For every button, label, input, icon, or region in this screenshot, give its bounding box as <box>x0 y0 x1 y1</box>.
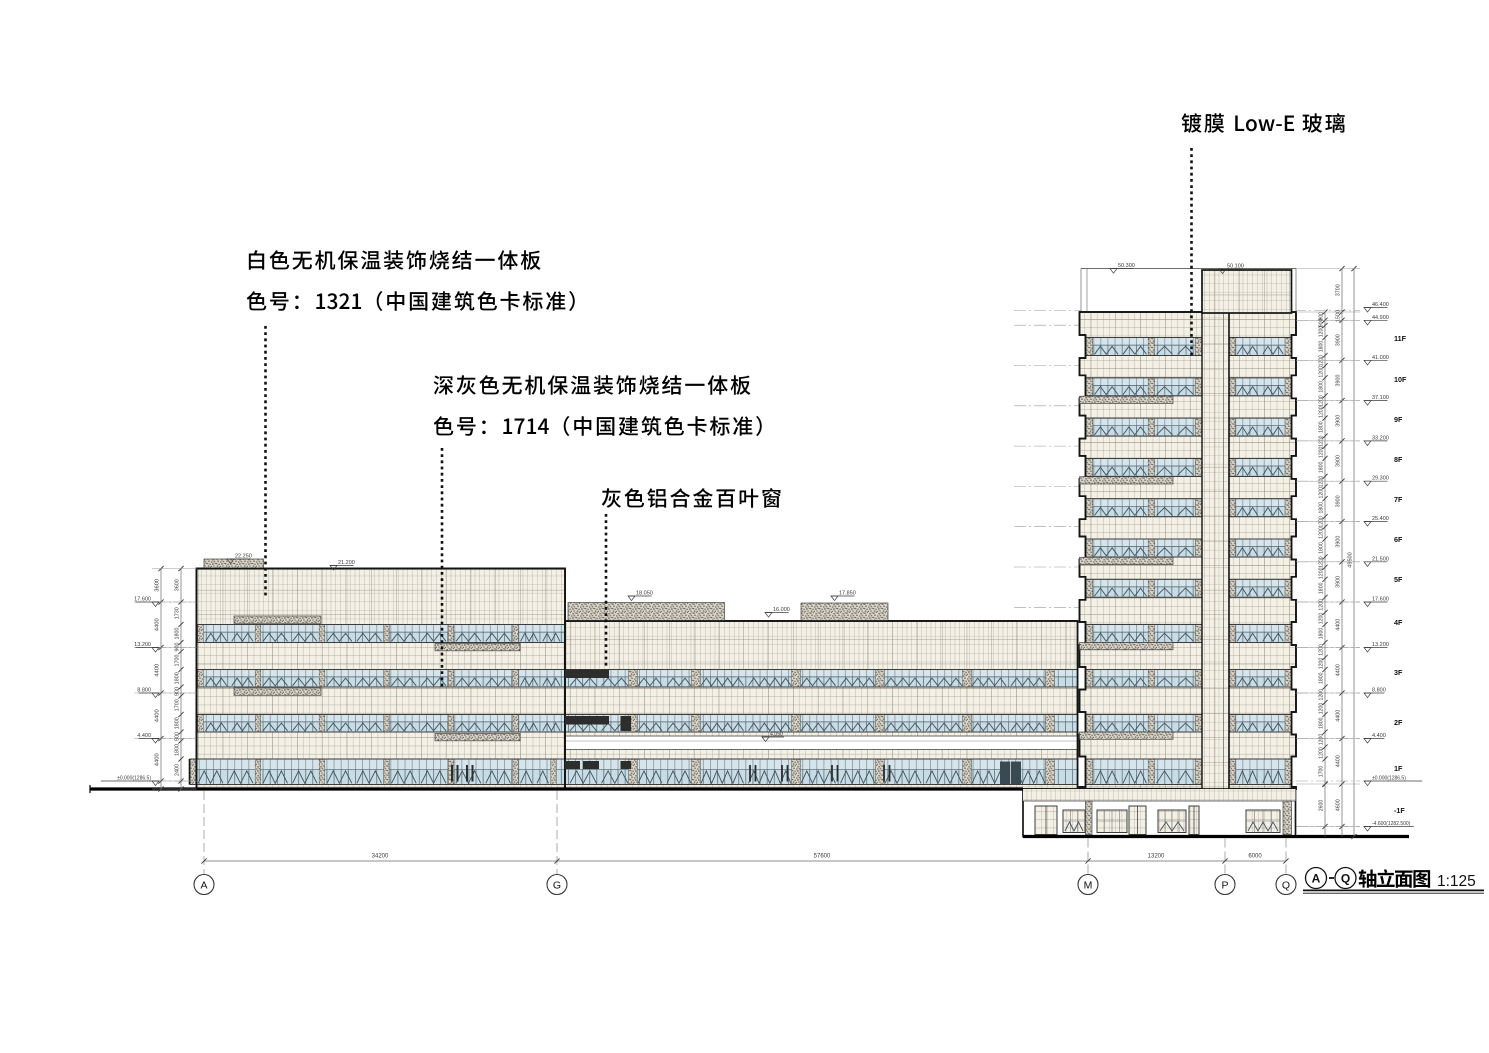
svg-text:-4.600(1282.500): -4.600(1282.500) <box>1372 821 1411 827</box>
svg-text:3600: 3600 <box>155 579 161 592</box>
svg-text:34200: 34200 <box>372 854 389 860</box>
svg-text:1200: 1200 <box>1319 599 1325 611</box>
svg-text:22.250: 22.250 <box>235 554 252 560</box>
svg-text:37.100: 37.100 <box>1372 395 1389 401</box>
svg-text:4400: 4400 <box>1335 664 1341 676</box>
svg-text:17.850: 17.850 <box>839 591 856 597</box>
svg-text:900: 900 <box>175 643 181 652</box>
svg-text:8.800: 8.800 <box>137 688 151 694</box>
svg-text:1700: 1700 <box>1319 766 1325 778</box>
svg-text:4F: 4F <box>1394 618 1403 627</box>
svg-text:13.200: 13.200 <box>134 642 151 648</box>
svg-text:1200: 1200 <box>1319 447 1325 459</box>
svg-text:±0.000(1286.5): ±0.000(1286.5) <box>117 776 151 782</box>
svg-text:1200: 1200 <box>1319 734 1325 746</box>
svg-text:1200: 1200 <box>1319 689 1325 701</box>
svg-text:4400: 4400 <box>155 709 161 722</box>
svg-text:25.400: 25.400 <box>1372 516 1389 522</box>
svg-text:1800: 1800 <box>1319 582 1325 594</box>
svg-text:±0.000(1286.5): ±0.000(1286.5) <box>1372 776 1406 782</box>
svg-text:A: A <box>1312 872 1321 886</box>
svg-text:44.900: 44.900 <box>1372 315 1389 321</box>
svg-text:G: G <box>553 879 561 891</box>
svg-text:16.000: 16.000 <box>773 607 790 613</box>
svg-text:1700: 1700 <box>175 655 181 667</box>
svg-text:4400: 4400 <box>1336 710 1342 722</box>
svg-text:1200: 1200 <box>1319 516 1325 528</box>
svg-text:11F: 11F <box>1394 334 1407 343</box>
svg-text:50.300: 50.300 <box>1118 263 1135 269</box>
svg-text:8.800: 8.800 <box>1372 688 1386 694</box>
svg-text:3900: 3900 <box>1336 495 1342 507</box>
svg-text:50.100: 50.100 <box>1227 264 1244 270</box>
svg-text:1800: 1800 <box>174 672 180 684</box>
svg-text:1800: 1800 <box>175 744 181 756</box>
svg-text:1800: 1800 <box>1318 672 1324 684</box>
svg-text:1800: 1800 <box>1319 628 1325 640</box>
svg-text:1800: 1800 <box>1319 462 1325 474</box>
svg-text:1200: 1200 <box>1318 355 1324 367</box>
svg-text:7F: 7F <box>1394 495 1403 504</box>
svg-text:Q: Q <box>1282 879 1290 891</box>
svg-text:46.400: 46.400 <box>1372 302 1389 308</box>
svg-text:900: 900 <box>175 687 181 696</box>
svg-text:5F: 5F <box>1394 575 1403 584</box>
svg-text:1200: 1200 <box>1319 658 1325 670</box>
svg-text:3900: 3900 <box>1335 536 1341 548</box>
svg-text:1200: 1200 <box>1319 613 1325 625</box>
svg-text:3900: 3900 <box>1335 455 1341 467</box>
svg-text:6000: 6000 <box>1248 854 1262 860</box>
svg-text:6F: 6F <box>1394 535 1403 544</box>
svg-text:Q: Q <box>1341 872 1350 886</box>
svg-text:1800: 1800 <box>174 717 180 729</box>
svg-text:17.600: 17.600 <box>134 597 151 603</box>
svg-text:29.300: 29.300 <box>1372 476 1389 482</box>
svg-text:2F: 2F <box>1394 718 1403 727</box>
svg-text:2600: 2600 <box>1319 800 1325 812</box>
svg-text:1700: 1700 <box>174 699 180 711</box>
svg-text:1:125: 1:125 <box>1437 873 1476 890</box>
svg-text:1800: 1800 <box>1319 341 1325 353</box>
svg-text:3600: 3600 <box>175 579 181 591</box>
svg-text:13200: 13200 <box>1148 854 1165 860</box>
svg-text:1200: 1200 <box>1319 567 1325 579</box>
svg-text:4400: 4400 <box>155 753 161 766</box>
svg-text:4400: 4400 <box>1336 619 1342 631</box>
svg-text:21.500: 21.500 <box>1372 556 1389 562</box>
svg-text:4.400: 4.400 <box>137 733 151 739</box>
svg-text:1200: 1200 <box>1319 644 1325 656</box>
svg-text:-1F: -1F <box>1394 806 1405 815</box>
svg-text:3900: 3900 <box>1336 374 1342 386</box>
svg-text:1800: 1800 <box>1319 381 1325 393</box>
svg-text:1800: 1800 <box>1319 502 1325 514</box>
svg-text:4400: 4400 <box>1335 755 1341 767</box>
svg-text:13.200: 13.200 <box>1372 642 1389 648</box>
svg-text:57600: 57600 <box>814 854 831 860</box>
svg-text:4.400: 4.400 <box>1372 733 1386 739</box>
svg-text:1200: 1200 <box>1318 476 1324 488</box>
svg-text:1800: 1800 <box>1319 421 1325 433</box>
svg-text:3F: 3F <box>1394 668 1403 677</box>
svg-text:1200: 1200 <box>1319 747 1325 759</box>
svg-text:3700: 3700 <box>1336 284 1342 296</box>
svg-text:10F: 10F <box>1394 375 1407 384</box>
svg-text:3900: 3900 <box>1336 415 1342 427</box>
svg-text:17.600: 17.600 <box>1372 597 1389 603</box>
svg-text:1800: 1800 <box>1319 542 1325 554</box>
svg-text:A: A <box>200 879 207 891</box>
svg-text:2400: 2400 <box>175 764 181 776</box>
svg-text:33.200: 33.200 <box>1372 435 1389 441</box>
svg-text:8F: 8F <box>1394 455 1403 464</box>
svg-text:P: P <box>1221 879 1228 891</box>
svg-text:3900: 3900 <box>1336 334 1342 346</box>
svg-text:1F: 1F <box>1394 764 1403 773</box>
svg-text:4600: 4600 <box>1335 799 1341 811</box>
svg-text:1200: 1200 <box>1319 366 1325 378</box>
svg-text:1800: 1800 <box>175 628 181 640</box>
svg-text:1200: 1200 <box>1319 703 1325 715</box>
svg-text:1200: 1200 <box>1319 527 1325 539</box>
svg-text:1200: 1200 <box>1319 487 1325 499</box>
svg-text:18.050: 18.050 <box>636 591 653 597</box>
svg-text:1730: 1730 <box>174 607 180 619</box>
svg-text:9F: 9F <box>1394 415 1403 424</box>
svg-text:3900: 3900 <box>1336 576 1342 588</box>
svg-text:21.200: 21.200 <box>338 560 355 566</box>
svg-text:4.050: 4.050 <box>770 732 783 738</box>
svg-text:1200: 1200 <box>1319 395 1325 407</box>
svg-text:1200: 1200 <box>1318 435 1324 447</box>
svg-text:900: 900 <box>175 732 181 741</box>
svg-text:41.000: 41.000 <box>1372 355 1389 361</box>
svg-text:1200: 1200 <box>1319 326 1325 338</box>
svg-text:4400: 4400 <box>154 664 160 677</box>
svg-text:4400: 4400 <box>155 618 161 631</box>
svg-text:49500: 49500 <box>1348 552 1354 568</box>
svg-text:M: M <box>1084 879 1093 891</box>
svg-text:1200: 1200 <box>1318 556 1324 568</box>
svg-text:1200: 1200 <box>1319 406 1325 418</box>
svg-text:1800: 1800 <box>1318 717 1324 729</box>
